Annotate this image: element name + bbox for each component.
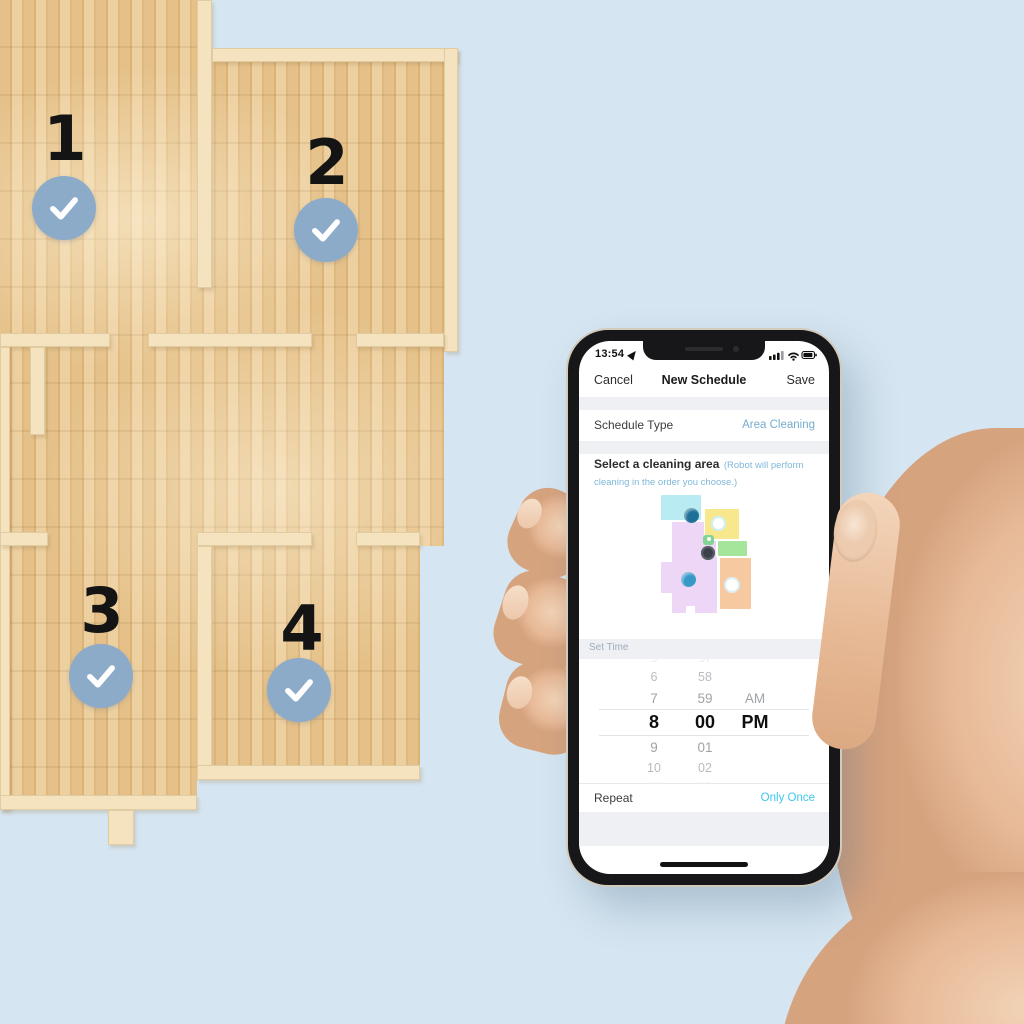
signal-bars-icon (769, 351, 784, 360)
home-indicator[interactable] (660, 862, 748, 867)
robot-icon (701, 546, 715, 560)
wall-segment (197, 546, 212, 766)
wall-segment (0, 333, 110, 347)
phone: 13:54 (566, 328, 842, 887)
repeat-row[interactable]: Repeat Only Once (579, 784, 829, 812)
schedule-type-label: Schedule Type (594, 418, 673, 432)
dock-icon (703, 535, 714, 545)
room-3-check-icon (69, 644, 133, 708)
wall-segment (30, 347, 45, 435)
section-divider (579, 441, 829, 454)
save-button[interactable]: Save (787, 373, 816, 387)
selection-badge (681, 572, 696, 587)
wall-segment (197, 532, 312, 546)
wall-segment (212, 48, 458, 62)
room-1-check-icon (32, 176, 96, 240)
cleaning-area-map[interactable] (629, 493, 779, 635)
picker-row[interactable]: 901 (599, 736, 809, 758)
select-area-block: Select a cleaning area (Robot will perfo… (594, 456, 822, 490)
section-divider (579, 397, 829, 410)
room-3-number: 3 (72, 575, 132, 645)
wall-segment (197, 765, 420, 780)
room-4-check-icon (267, 658, 331, 722)
selection-badge (711, 516, 726, 531)
room-1-number: 1 (35, 103, 95, 173)
schedule-type-row[interactable]: Schedule Type Area Cleaning (579, 410, 829, 441)
wall-segment (0, 795, 197, 810)
picker-row[interactable]: 557 (599, 659, 809, 667)
room-2-check-icon (294, 198, 358, 262)
status-icons (769, 349, 817, 361)
picker-row[interactable]: 759AM (599, 687, 809, 709)
selection-badge (684, 508, 699, 523)
wall-segment (148, 333, 312, 347)
picker-row[interactable]: 1002 (599, 758, 809, 778)
time-picker[interactable]: 557 658 759AM 800PM 901 1002 (579, 659, 829, 783)
repeat-label: Repeat (594, 791, 633, 805)
wall-segment (356, 333, 444, 347)
wifi-dot (792, 358, 794, 360)
scene: 1 2 3 4 13:54 (0, 0, 1024, 1024)
battery-icon (802, 352, 817, 359)
wall-segment (0, 347, 10, 810)
repeat-value[interactable]: Only Once (761, 792, 815, 804)
picker-row[interactable]: 658 (599, 667, 809, 687)
floor-plan: 1 2 3 4 (0, 0, 460, 846)
wifi-icon (789, 353, 798, 357)
wall-segment (108, 810, 134, 845)
status-bar: 13:54 (579, 347, 829, 363)
wall-segment (197, 0, 212, 288)
room-2-number: 2 (297, 127, 357, 197)
status-time: 13:54 (595, 348, 624, 360)
set-time-header: Set Time (579, 639, 829, 659)
nav-header: Cancel New Schedule Save (579, 369, 829, 395)
picker-selected-row[interactable]: 800PM (599, 709, 809, 736)
schedule-type-value[interactable]: Area Cleaning (742, 419, 815, 431)
wall-segment (444, 48, 458, 352)
section-divider (579, 812, 829, 846)
select-area-title: Select a cleaning area (594, 457, 719, 471)
room-4-number: 4 (272, 593, 332, 663)
wall-segment (356, 532, 420, 546)
set-time-label: Set Time (589, 642, 628, 653)
location-arrow-icon (627, 348, 639, 360)
selection-badge (724, 577, 740, 593)
wall-segment (0, 532, 48, 546)
hand-knuckles (778, 872, 1024, 1024)
phone-screen: 13:54 (579, 341, 829, 874)
